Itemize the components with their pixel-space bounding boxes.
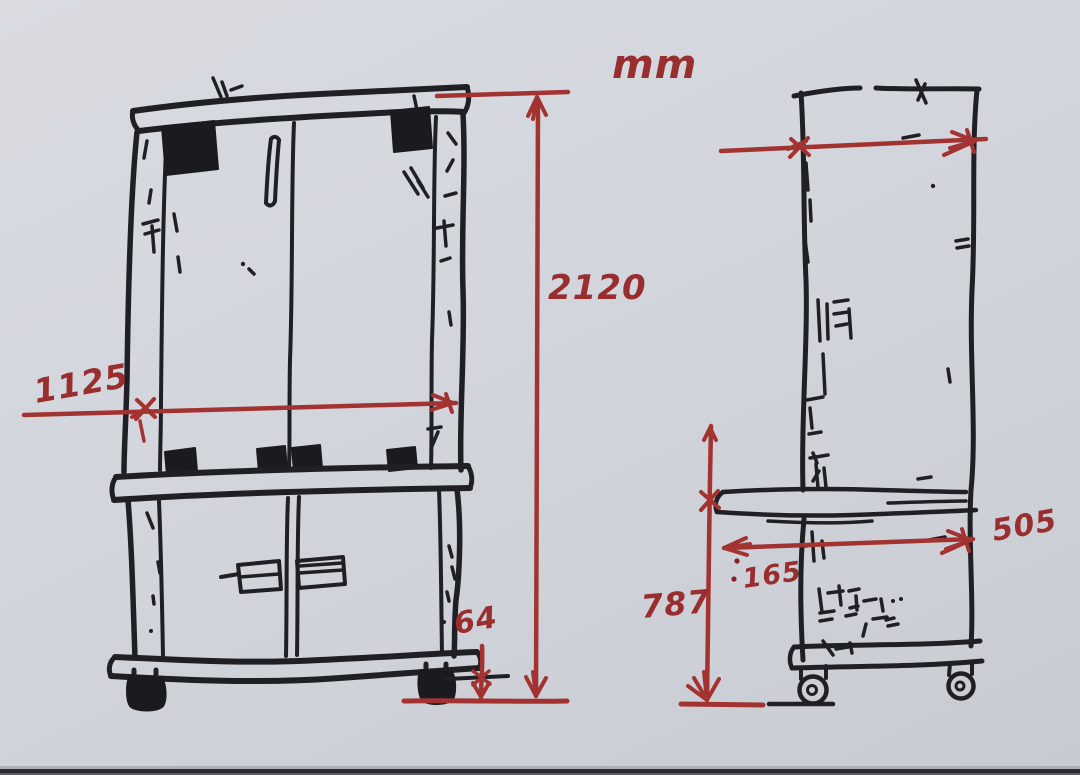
side-hatch-marks	[805, 135, 969, 655]
cabinet-dimension-sketch: mm 2120 1125 64 787 165 505	[0, 0, 1080, 775]
dim-label-64: 64	[451, 600, 500, 642]
dim-label-165: 165	[741, 556, 804, 595]
side-right-caster	[949, 662, 974, 699]
side-left-caster	[800, 666, 827, 704]
dim-label-787: 787	[639, 582, 712, 626]
dim-label-505: 505	[989, 503, 1060, 549]
photo-bottom-edge	[0, 766, 1080, 775]
dimension-side-top-depth-arrow	[721, 130, 986, 157]
dim-label-2120: 2120	[548, 268, 647, 308]
dim-label-1125: 1125	[31, 356, 132, 411]
side-base-plinth	[790, 641, 982, 668]
paper-sketch-photo: mm 2120 1125 64 787 165 505	[0, 0, 1080, 775]
front-lower-door-handles	[221, 557, 345, 592]
unit-label: mm	[612, 42, 697, 88]
front-upper-door-handle	[266, 137, 279, 206]
side-carcass-outline	[794, 80, 979, 660]
side-view-sketch	[716, 80, 982, 704]
front-lower-carcass	[128, 489, 460, 658]
front-view-sketch	[109, 78, 508, 711]
side-worktop-shelf	[716, 489, 976, 523]
